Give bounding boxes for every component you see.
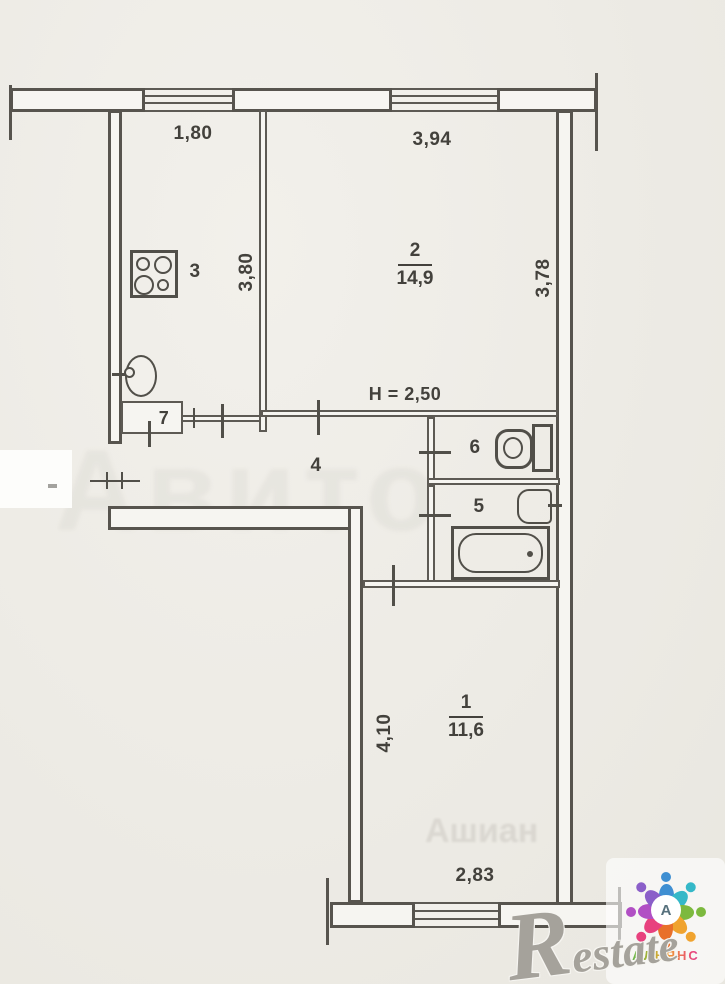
wc-number: 6 — [463, 435, 487, 461]
window-top-left — [145, 88, 232, 112]
window-bottom — [415, 902, 498, 928]
window-line — [415, 902, 498, 904]
bathtub-drain — [527, 551, 533, 557]
wall-cap-bottom-left — [326, 878, 329, 945]
toilet-bowl-inner — [503, 437, 523, 459]
patch-speck — [48, 484, 57, 488]
window-line — [415, 910, 498, 912]
entrance-dimension-line — [90, 480, 140, 482]
toilet-bowl-icon — [495, 429, 533, 469]
door-tick-kitchen-a — [193, 408, 195, 428]
room1-label: 1 11,6 — [434, 692, 498, 742]
washbasin-icon — [517, 489, 552, 524]
room1-area: 11,6 — [434, 720, 498, 742]
area-divider — [449, 716, 483, 718]
wall-bottom-segment-left — [330, 902, 415, 928]
dim-top-left: 1,80 — [156, 120, 230, 148]
wall-end-entrance — [108, 441, 122, 444]
restate-watermark: Restate — [499, 864, 725, 984]
dim-kitchen-depth: 3,80 — [219, 244, 275, 300]
door-tick-kitchen-b — [221, 404, 224, 438]
kitchen-sink-knob — [124, 367, 135, 378]
door-tick-bath — [419, 514, 451, 517]
entrance-tick-b — [121, 472, 123, 489]
burner — [136, 257, 150, 271]
wall-top-segment-middle — [232, 88, 392, 112]
wall-cap-top-left — [9, 85, 12, 140]
wall-top-segment-left — [10, 88, 145, 112]
toilet-tank-icon — [532, 424, 553, 472]
window-line — [145, 102, 232, 104]
dim-room1-depth: 4,10 — [357, 705, 413, 761]
kitchen-number: 3 — [183, 259, 207, 285]
bathtub-icon — [451, 526, 550, 580]
window-line — [415, 918, 498, 920]
window-line — [392, 95, 497, 97]
wall-hallway-bottom — [108, 506, 363, 530]
floor-plan: Авито Ашиан — [0, 0, 725, 984]
wall-right-exterior — [556, 110, 573, 905]
entrance-tick-a — [106, 472, 108, 489]
window-line — [145, 95, 232, 97]
burner — [154, 256, 172, 274]
burner — [157, 279, 169, 291]
wall-bath-left — [427, 485, 435, 584]
wall-wc-left — [427, 417, 435, 481]
window-line — [145, 88, 232, 90]
ghost-watermark-center: Авито — [55, 425, 445, 557]
window-line — [392, 88, 497, 90]
window-line — [392, 110, 497, 112]
burner — [134, 275, 154, 295]
door-tick-wc — [419, 451, 451, 454]
window-line — [415, 926, 498, 928]
ghost-watermark-bottom: Ашиан — [425, 812, 538, 851]
wall-wc-bath-divider — [427, 478, 560, 485]
washbasin-tap — [548, 504, 562, 507]
wall-room2-hallway — [261, 410, 558, 417]
room1-number: 1 — [434, 692, 498, 714]
door-tick-room2 — [317, 400, 320, 435]
door-tick-room1 — [392, 565, 395, 606]
dim-top-right: 3,94 — [395, 126, 469, 154]
blank-patch — [0, 450, 72, 508]
stove-icon — [130, 250, 178, 298]
hallway-number: 4 — [303, 453, 329, 479]
wall-cap-top-right — [595, 73, 598, 151]
closet-number: 7 — [150, 404, 178, 432]
bathroom-number: 5 — [467, 494, 491, 520]
room2-label: 2 14,9 — [383, 240, 447, 290]
window-line — [145, 110, 232, 112]
window-line — [392, 102, 497, 104]
dim-room2-depth: 3,78 — [516, 250, 572, 306]
room2-number: 2 — [383, 240, 447, 262]
wall-left-exterior — [108, 110, 122, 444]
dim-room1-width: 2,83 — [440, 862, 510, 890]
window-top-right — [392, 88, 497, 112]
area-divider — [398, 264, 432, 266]
room2-area: 14,9 — [383, 268, 447, 290]
wall-top-segment-right — [497, 88, 597, 112]
ceiling-height-note: H = 2,50 — [355, 381, 455, 407]
